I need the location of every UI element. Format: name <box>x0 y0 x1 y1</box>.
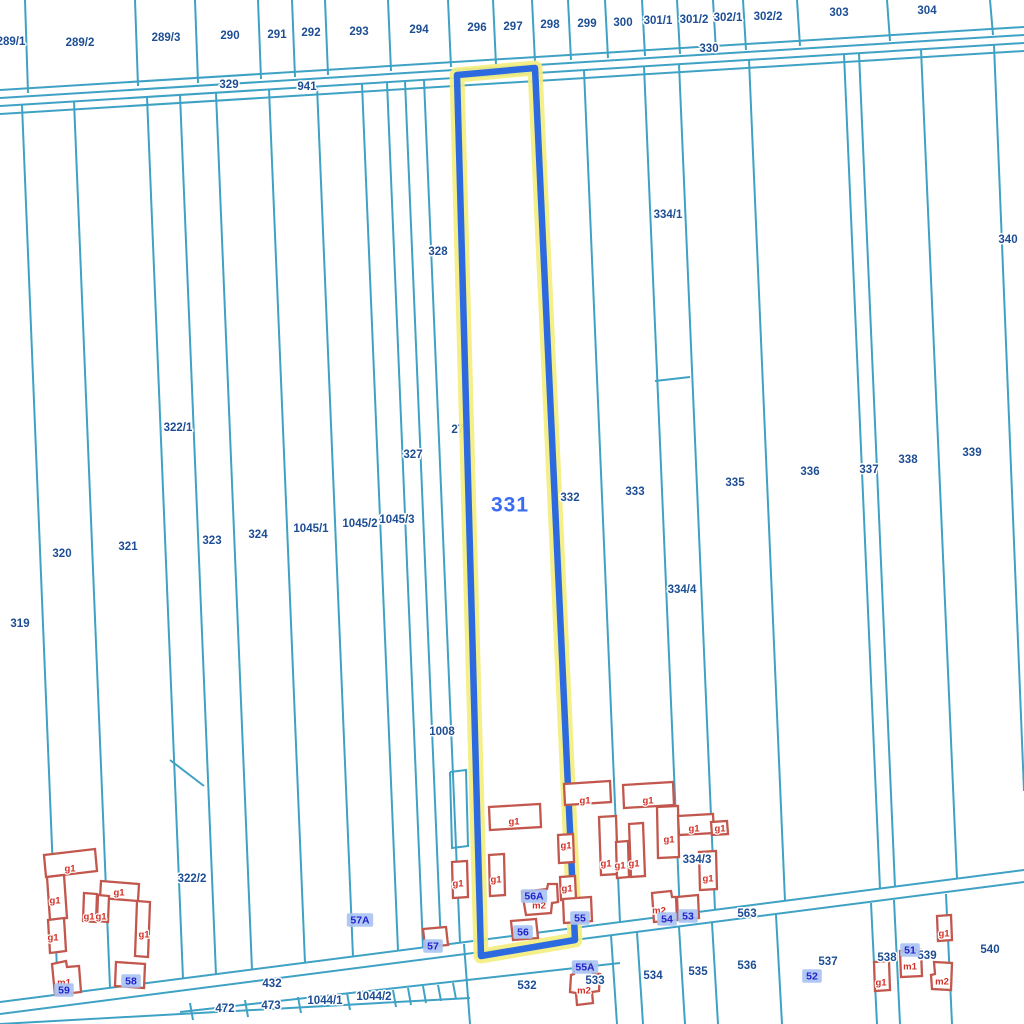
parcel-boundary-line <box>776 915 782 1024</box>
parcel-number-label: 540 <box>980 944 999 956</box>
address-number-chip: 55A <box>572 960 598 974</box>
building-type-label: g1 <box>95 912 107 923</box>
parcel-number-label: 335 <box>725 477 745 489</box>
parcel-number-label: 321 <box>118 541 138 553</box>
parcel-boundary-line <box>135 0 138 86</box>
address-chip-text: 51 <box>904 945 916 957</box>
parcel-number-label: 290 <box>220 30 239 42</box>
parcel-boundary-line <box>195 0 198 83</box>
parcel-number-label: 322/1 <box>164 422 193 434</box>
parcel-boundary-line <box>347 993 350 1010</box>
parcel-number-label: 332 <box>560 492 579 504</box>
building-type-label: g1 <box>138 930 150 941</box>
building-type-label: m2 <box>935 977 949 988</box>
parcel-number-label: 941 <box>297 81 317 93</box>
parcel-number-label: 291 <box>267 29 287 41</box>
parcel-number-label: 1044/2 <box>356 991 391 1003</box>
address-number-chip: 57A <box>347 913 373 927</box>
parcel-number-label: 536 <box>737 960 756 972</box>
parcel-number-label: 297 <box>503 21 522 33</box>
parcel-number-label: 302/1 <box>714 12 743 24</box>
building-type-label: g1 <box>47 933 59 944</box>
parcel-boundary-line <box>749 60 785 901</box>
parcel-number-label: 300 <box>613 17 632 29</box>
parcel-number-label: 301/2 <box>680 14 709 26</box>
parcel-number-label: 532 <box>517 980 536 992</box>
parcel-number-label: 329 <box>219 79 238 91</box>
address-number-chip: 57 <box>423 939 443 953</box>
parcel-boundary-line <box>464 944 470 1024</box>
parcel-number-label: 340 <box>998 234 1017 246</box>
parcel-boundary-line <box>637 932 643 1024</box>
address-number-chip: 56A <box>521 889 547 903</box>
parcel-number-label: 319 <box>10 618 29 630</box>
parcel-boundary-line <box>25 0 28 93</box>
building-type-label: g1 <box>64 864 76 875</box>
building-type-label: g1 <box>49 896 61 907</box>
parcel-boundary-line <box>946 894 952 1024</box>
parcel-boundary-line <box>0 998 470 1024</box>
parcel-boundary-line <box>611 935 617 1024</box>
parcel-boundary-line <box>0 51 1024 114</box>
address-chip-text: 59 <box>58 985 70 997</box>
parcel-number-label: 1045/1 <box>293 523 329 535</box>
parcel-number-label: 334/3 <box>683 854 712 866</box>
parcel-boundary-line <box>605 0 608 58</box>
building-type-label: g1 <box>938 929 950 940</box>
address-chip-text: 57A <box>350 915 370 927</box>
parcel-boundary-line <box>388 0 391 71</box>
address-chip-text: 55A <box>575 962 595 974</box>
parcel-number-label: 327 <box>403 449 422 461</box>
parcel-boundary-line <box>393 990 396 1007</box>
parcel-number-label: 289/3 <box>152 32 181 44</box>
parcel-boundary-line <box>147 97 183 979</box>
parcel-boundary-line <box>642 0 645 56</box>
parcel-number-label: 292 <box>301 27 320 39</box>
parcel-boundary-line <box>216 93 252 970</box>
building-type-label: g1 <box>688 824 700 835</box>
parcel-number-label: 334/1 <box>654 209 683 221</box>
parcel-boundary-line <box>258 0 261 79</box>
building-type-label: g1 <box>579 796 591 807</box>
parcel-boundary-line <box>292 0 295 77</box>
parcel-number-label: 334/4 <box>668 584 697 596</box>
parcel-number-label: 336 <box>800 466 819 478</box>
building-type-label: m2 <box>577 986 591 997</box>
parcel-number-label: 320 <box>52 548 71 560</box>
building-type-label: g1 <box>875 978 887 989</box>
parcel-boundary-line <box>448 0 451 67</box>
building-type-label: g1 <box>714 824 726 835</box>
parcel-number-label: 303 <box>829 7 848 19</box>
parcel-number-label: 298 <box>540 19 560 31</box>
selected-parcel-label: 331 <box>491 494 529 517</box>
parcel-boundary-line <box>532 0 535 62</box>
building-type-label: g1 <box>560 841 572 852</box>
parcel-number-label: 538 <box>877 952 897 964</box>
address-chip-text: 53 <box>682 911 694 923</box>
parcel-boundary-line <box>679 64 715 910</box>
building-type-label: m1 <box>903 962 917 973</box>
building-type-label: g1 <box>600 859 612 870</box>
building-type-label: g1 <box>642 796 654 807</box>
address-number-chip: 58 <box>121 974 141 988</box>
building-type-label: g1 <box>663 835 675 846</box>
address-chip-text: 54 <box>661 914 673 926</box>
building-type-label: g1 <box>508 817 520 828</box>
address-chip-text: 52 <box>806 971 818 983</box>
parcel-boundary-line <box>325 0 328 75</box>
parcel-number-label: 1045/2 <box>342 518 377 530</box>
building-type-label: g1 <box>113 888 125 899</box>
parcel-boundary-line <box>921 49 957 879</box>
parcel-number-label: 537 <box>818 956 837 968</box>
building-type-label: g1 <box>452 879 464 890</box>
parcel-boundary-line <box>453 983 456 999</box>
address-chip-text: 56 <box>517 927 529 939</box>
parcel-boundary-line <box>994 45 1024 791</box>
parcel-boundary-line <box>568 0 571 60</box>
building-type-label: g1 <box>628 859 640 870</box>
building-type-label: g1 <box>702 874 714 885</box>
parcel-number-label: 563 <box>737 908 756 920</box>
cadastral-map-canvas[interactable]: 272g1g1g1g1g1g1g1m1g1g1g1g1g1g1g1g1g1g1g… <box>0 0 1024 1024</box>
address-chip-text: 58 <box>125 976 137 988</box>
parcel-boundary-line <box>245 1000 248 1017</box>
address-number-chip: 51 <box>900 943 920 957</box>
parcel-number-label: 432 <box>262 978 281 990</box>
address-number-chip: 52 <box>802 969 822 983</box>
address-chip-text: 55 <box>574 913 586 925</box>
building-type-label: g1 <box>614 861 626 872</box>
building-type-label: g1 <box>83 912 95 923</box>
parcel-boundary-line <box>743 0 746 50</box>
parcel-number-label: 293 <box>349 26 368 38</box>
parcel-boundary-line <box>438 985 441 1001</box>
map-viewport[interactable]: 272g1g1g1g1g1g1g1m1g1g1g1g1g1g1g1g1g1g1g… <box>0 0 1024 1024</box>
parcel-number-label: 338 <box>898 454 918 466</box>
address-number-chip: 55 <box>570 911 590 925</box>
parcel-boundary-line <box>679 927 685 1024</box>
parcel-number-label: 534 <box>643 970 663 982</box>
building-outline <box>657 806 679 858</box>
parcel-number-label: 339 <box>962 447 981 459</box>
parcel-number-label: 535 <box>688 966 708 978</box>
parcel-number-label: 337 <box>859 464 878 476</box>
parcel-number-label: 301/1 <box>644 15 673 27</box>
parcel-number-label: 302/2 <box>754 11 783 23</box>
parcel-number-label: 322/2 <box>178 873 207 885</box>
building-type-label: g1 <box>561 884 573 895</box>
address-number-chip: 56 <box>513 925 533 939</box>
parcel-number-label: 324 <box>248 529 268 541</box>
parcel-number-label: 323 <box>202 535 221 547</box>
parcel-number-label: 1045/3 <box>379 514 414 526</box>
parcel-boundary-line <box>493 0 496 65</box>
parcel-number-label: 289/1 <box>0 36 26 48</box>
address-chip-text: 57 <box>427 941 439 953</box>
parcel-number-label: 473 <box>261 1000 280 1012</box>
parcel-number-label: 533 <box>585 975 604 987</box>
parcel-boundary-line <box>712 923 718 1024</box>
address-chip-text: 56A <box>524 891 544 903</box>
parcel-number-label: 330 <box>699 43 718 55</box>
parcel-number-label: 472 <box>215 1003 234 1015</box>
parcel-number-label: 539 <box>917 950 936 962</box>
address-number-chip: 53 <box>678 909 698 923</box>
building-outline <box>616 841 629 878</box>
parcel-number-label: 1044/1 <box>307 995 343 1007</box>
parcel-number-label: 289/2 <box>66 37 95 49</box>
parcel-boundary-line <box>408 988 411 1005</box>
parcel-boundary-line <box>797 0 800 46</box>
parcel-boundary-line <box>677 0 680 54</box>
address-number-chip: 54 <box>657 912 677 926</box>
parcel-number-label: 1008 <box>429 726 455 738</box>
building-type-label: g1 <box>490 875 502 886</box>
parcel-number-label: 294 <box>409 24 429 36</box>
parcel-number-label: 333 <box>625 486 644 498</box>
parcel-boundary-line <box>655 377 690 381</box>
parcel-number-label: 304 <box>917 5 937 17</box>
parcel-number-label: 299 <box>577 18 596 30</box>
parcel-number-label: 328 <box>428 246 448 258</box>
address-number-chip: 59 <box>54 983 74 997</box>
parcel-number-label: 296 <box>467 22 486 34</box>
